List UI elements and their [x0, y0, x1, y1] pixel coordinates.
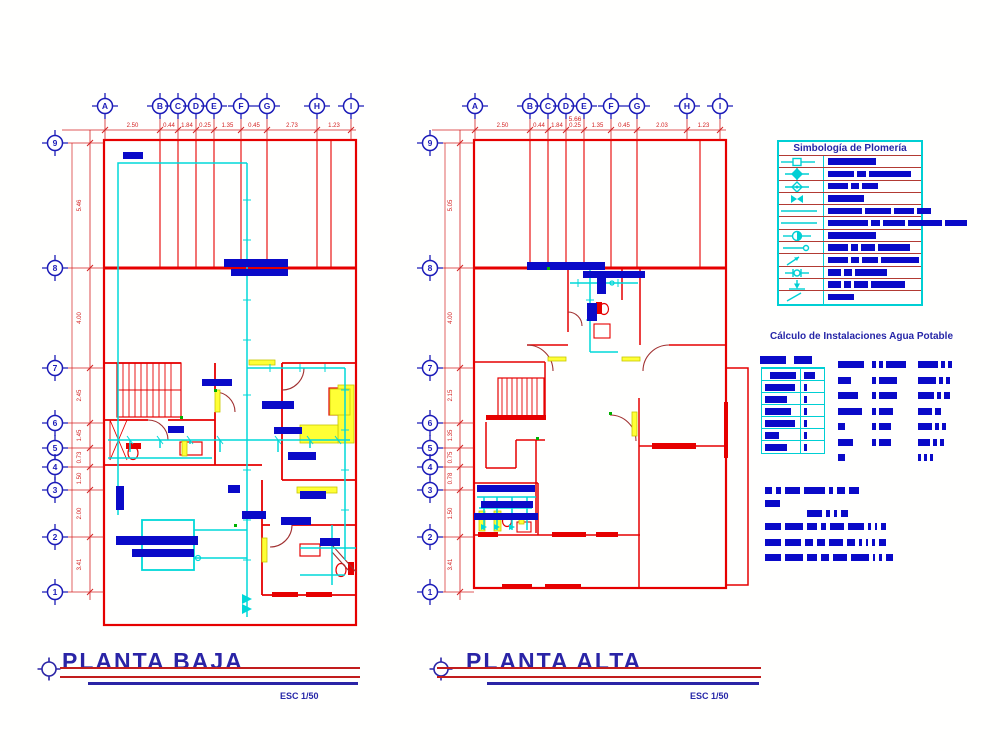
redacted-text-block	[941, 361, 945, 368]
calc-mini-row	[762, 380, 824, 392]
redacted-text-block	[804, 384, 807, 391]
grid-bubble-label: B	[527, 101, 533, 111]
redacted-text-block	[770, 372, 796, 379]
redacted-text-block	[804, 408, 807, 415]
calc-detail-group	[918, 408, 941, 415]
cad-sheet: ABCDEFGHI2.500.441.840.251.350.452.731.2…	[0, 0, 1000, 751]
redacted-text-block	[785, 487, 800, 494]
redacted-text-block	[935, 408, 941, 415]
planta-alta-walls	[474, 140, 748, 588]
dimension-label: 2.15	[448, 389, 454, 401]
redacted-text-block	[805, 539, 813, 546]
dimension-label: 5.05	[448, 199, 454, 211]
redacted-text-block	[862, 257, 878, 264]
redacted-text-block	[828, 183, 848, 190]
redacted-text-block	[807, 510, 822, 517]
redacted-text-block	[765, 396, 787, 403]
redacted-text-block	[821, 523, 826, 530]
redacted-text-block	[828, 158, 876, 165]
grid-bubble: 1	[417, 579, 443, 605]
legend-row-text	[823, 244, 910, 251]
legend-title: Simbología de Plomería	[779, 142, 921, 155]
calc-detail-group	[838, 408, 862, 415]
dimension-label: 0.45	[248, 123, 260, 129]
redacted-text-block	[765, 408, 791, 415]
grid-bubble: 4	[42, 454, 68, 480]
grid-bubble: G	[254, 93, 280, 119]
grid-bubble: 3	[42, 477, 68, 503]
dimension-label: 0.78	[448, 472, 454, 484]
grid-bubble-label: 2	[428, 532, 433, 542]
dimension-label: 1.50	[77, 472, 83, 484]
calc-detail-group	[872, 408, 893, 415]
calc-detail-group	[838, 361, 864, 368]
redacted-text-block	[879, 554, 882, 561]
redacted-text-block	[838, 408, 862, 415]
title-underline-red	[437, 676, 761, 678]
grid-bubble: H	[304, 93, 330, 119]
redacted-text-block	[844, 269, 852, 276]
grid-bubble-label: A	[102, 101, 108, 111]
redacted-text-block	[851, 554, 869, 561]
dimension-label: 2.73	[286, 123, 298, 129]
dimension-label: 3.41	[77, 558, 83, 570]
legend-row-text	[823, 220, 967, 227]
legend-row	[779, 278, 921, 290]
legend-row-text	[823, 257, 919, 264]
planta-alta-labels	[474, 262, 645, 520]
redacted-text-block	[828, 195, 864, 202]
redacted-text-block	[875, 523, 877, 530]
grid-bubble-label: 5	[53, 443, 58, 453]
redacted-text-block	[865, 208, 891, 215]
dimension-label: 1.35	[448, 429, 454, 441]
redacted-text-block	[851, 257, 859, 264]
calc-detail-group	[838, 439, 853, 446]
redacted-text-block	[872, 392, 876, 399]
grid-bubble: 8	[42, 255, 68, 281]
redacted-text-block	[944, 392, 950, 399]
grid-bubble-label: F	[608, 101, 613, 111]
grid-bubble-label: D	[563, 101, 569, 111]
redacted-text-block	[830, 523, 844, 530]
redacted-text-block	[851, 183, 859, 190]
dimension-label: 2.03	[656, 123, 668, 129]
redacted-text-block	[871, 281, 905, 288]
redacted-text-block	[935, 423, 939, 430]
grid-bubble-label: 7	[428, 363, 433, 373]
redacted-text-block	[881, 523, 886, 530]
legend-row	[779, 155, 921, 167]
grid-bubble: F	[228, 93, 254, 119]
redacted-text-block	[872, 539, 875, 546]
grid-bubble-label: 1	[53, 587, 58, 597]
grid-bubble-label: G	[634, 101, 641, 111]
grid-bubble: 3	[417, 477, 443, 503]
plumbing-legend: Simbología de Plomería	[777, 140, 923, 306]
redacted-text-block	[883, 220, 905, 227]
redacted-text-block	[828, 220, 868, 227]
redacted-text-block	[804, 444, 807, 451]
grid-bubble-label: 6	[53, 418, 58, 428]
legend-row	[779, 229, 921, 241]
redacted-text-block	[879, 539, 886, 546]
grid-bubble: 7	[42, 355, 68, 381]
redacted-text-block	[942, 423, 946, 430]
grid-bubble-label: E	[211, 101, 217, 111]
redacted-text-block	[821, 554, 829, 561]
grid-bubble-label: I	[350, 101, 352, 111]
redacted-text-block	[881, 257, 919, 264]
redacted-text-block	[924, 454, 927, 461]
grid-bubble-label: 8	[428, 263, 433, 273]
redacted-text-block	[879, 361, 883, 368]
dimension-label: 0.75	[448, 451, 454, 463]
redacted-text-block	[879, 408, 893, 415]
calc-detail-group	[838, 423, 845, 430]
redacted-text-block	[948, 361, 952, 368]
redacted-text-block	[828, 269, 841, 276]
redacted-text-block	[873, 554, 875, 561]
redacted-text-block	[908, 220, 942, 227]
legend-row-text	[823, 208, 931, 215]
redacted-text-block	[848, 523, 864, 530]
redacted-text-block	[939, 377, 943, 384]
grid-bubble: I	[707, 93, 733, 119]
grid-bubble-label: 9	[428, 138, 433, 148]
redacted-text-block	[849, 487, 859, 494]
overall-dimension-label: 5.66	[569, 116, 582, 123]
calc-mini-row	[762, 392, 824, 404]
grid-bubble-label: 4	[53, 462, 58, 472]
floor-plan-drawing: ABCDEFGHI2.500.441.840.251.350.452.731.2…	[0, 0, 1000, 751]
note-line	[765, 539, 886, 546]
redacted-text-block	[854, 281, 868, 288]
redacted-text-block	[872, 377, 876, 384]
redacted-text-block	[833, 554, 847, 561]
redacted-text-block	[804, 396, 807, 403]
note-line	[807, 510, 848, 517]
dimension-label: 1.45	[77, 429, 83, 441]
redacted-text-block	[837, 487, 845, 494]
dimension-label: 0.25	[199, 123, 211, 129]
redacted-text-block	[918, 423, 932, 430]
redacted-text-block	[879, 377, 897, 384]
calc-detail-group	[838, 454, 845, 461]
calc-detail-group	[838, 392, 858, 399]
legend-row	[779, 241, 921, 253]
title-underline-red	[60, 676, 360, 678]
legend-row-text	[823, 171, 911, 178]
planta-alta-doors	[527, 312, 669, 441]
redacted-text-block	[834, 510, 837, 517]
redacted-text-block	[872, 408, 876, 415]
redacted-text-block	[765, 444, 787, 451]
dimension-label: 0.25	[569, 123, 581, 129]
redacted-text-block	[838, 377, 851, 384]
grid-bubble-label: 3	[53, 485, 58, 495]
redacted-text-block	[807, 523, 817, 530]
calc-detail-group	[872, 439, 891, 446]
redacted-text-block	[917, 208, 931, 215]
planta-baja-labels	[116, 152, 340, 557]
grid-bubble: E	[201, 93, 227, 119]
redacted-text-block	[765, 487, 772, 494]
legend-row-text	[823, 232, 876, 239]
grid-bubble: 1	[42, 579, 68, 605]
legend-row	[779, 192, 921, 204]
legend-row-text	[823, 269, 887, 276]
grid-bubble: 7	[417, 355, 443, 381]
redacted-text-block	[765, 384, 795, 391]
legend-row-text	[823, 183, 878, 190]
grid-bubble-label: F	[238, 101, 243, 111]
calc-detail-group	[918, 423, 946, 430]
redacted-text-block	[804, 487, 825, 494]
grid-bubble-label: B	[157, 101, 163, 111]
redacted-text-block	[894, 208, 914, 215]
redacted-text-block	[871, 220, 880, 227]
calc-mini-table	[761, 367, 825, 454]
grid-bubble: 6	[417, 410, 443, 436]
redacted-text-block	[945, 220, 967, 227]
redacted-text-block	[869, 171, 911, 178]
redacted-text-block	[765, 500, 780, 507]
calc-detail-group	[838, 377, 851, 384]
redacted-text-block	[828, 171, 854, 178]
calc-mini-row	[762, 428, 824, 440]
redacted-text-block	[804, 372, 815, 379]
redacted-text-block	[760, 356, 786, 364]
planta-baja-fixtures-yellow	[182, 360, 354, 562]
calc-mini-row	[762, 416, 824, 428]
redacted-text-block	[930, 454, 933, 461]
redacted-text-block	[868, 523, 871, 530]
title-underline-red	[60, 667, 360, 669]
calc-detail-group	[918, 377, 950, 384]
redacted-text-block	[866, 539, 868, 546]
calc-table-title: Cálculo de Instalaciones Agua Potable	[770, 331, 970, 342]
redacted-text-block	[838, 439, 853, 446]
legend-row	[779, 180, 921, 192]
redacted-text-block	[878, 244, 910, 251]
grid-bubble-label: I	[719, 101, 721, 111]
calc-detail-group	[872, 392, 897, 399]
redacted-text-block	[847, 539, 855, 546]
dimension-label: 2.50	[127, 123, 139, 129]
grid-bubble-label: H	[314, 101, 320, 111]
calc-detail-group	[918, 439, 944, 446]
grid-bubble: I	[338, 93, 364, 119]
redacted-text-block	[765, 523, 781, 530]
redacted-text-block	[828, 208, 862, 215]
redacted-text-block	[765, 432, 779, 439]
redacted-text-block	[851, 244, 858, 251]
note-line	[765, 487, 859, 494]
grid-bubble-label: 5	[428, 443, 433, 453]
redacted-text-block	[918, 392, 934, 399]
grid-bubble: 4	[417, 454, 443, 480]
calc-mini-row	[762, 368, 824, 380]
grid-bubble: A	[462, 93, 488, 119]
dimension-label: 2.50	[497, 123, 509, 129]
redacted-text-block	[838, 392, 858, 399]
redacted-text-block	[841, 510, 848, 517]
plan-title: PLANTA ALTA	[466, 648, 642, 675]
redacted-text-block	[785, 523, 803, 530]
grid-bubble: G	[624, 93, 650, 119]
redacted-text-block	[838, 454, 845, 461]
grid-bubble-label: E	[581, 101, 587, 111]
dimension-label: 1.84	[551, 123, 563, 129]
grid-bubble: 8	[417, 255, 443, 281]
redacted-text-block	[940, 439, 944, 446]
redacted-text-block	[918, 377, 936, 384]
grid-bubble: A	[92, 93, 118, 119]
title-block-planta-alta: PLANTA ALTA ESC 1/50	[428, 648, 768, 708]
redacted-text-block	[844, 281, 851, 288]
note-line	[765, 500, 780, 507]
grid-bubble-label: D	[193, 101, 199, 111]
dimension-label: 0.73	[77, 451, 83, 463]
dimension-label: 0.45	[618, 123, 630, 129]
grid-bubble: 2	[417, 524, 443, 550]
grid-bubble-label: G	[264, 101, 271, 111]
dimension-label: 0.44	[163, 123, 175, 129]
calc-detail-group	[918, 392, 950, 399]
redacted-text-block	[828, 294, 854, 301]
legend-row	[779, 266, 921, 278]
calc-detail-group	[918, 454, 933, 461]
title-underline-blue	[487, 682, 759, 685]
calc-detail-group	[872, 423, 891, 430]
grid-bubble: 9	[417, 130, 443, 156]
dimension-label: 4.00	[448, 312, 454, 324]
grid-bubble-label: 8	[53, 263, 58, 273]
redacted-text-block	[918, 361, 938, 368]
calc-mini-row	[762, 440, 824, 452]
dimension-label: 1.50	[448, 507, 454, 519]
grid-bubble-label: 4	[428, 462, 433, 472]
scale-label: ESC 1/50	[690, 691, 729, 701]
grid-bubble-label: C	[175, 101, 181, 111]
dimension-label: 0.44	[533, 123, 545, 129]
north-compass-icon	[428, 656, 454, 682]
calc-detail-group	[918, 361, 952, 368]
legend-row-text	[823, 195, 864, 202]
calc-mini-row	[762, 404, 824, 416]
grid-bubble-label: C	[545, 101, 551, 111]
redacted-text-block	[765, 554, 781, 561]
redacted-text-block	[857, 171, 866, 178]
grid-bubble-label: 9	[53, 138, 58, 148]
calc-detail-group	[872, 377, 897, 384]
legend-row-text	[823, 158, 876, 165]
legend-row	[779, 167, 921, 179]
scale-label: ESC 1/50	[280, 691, 319, 701]
grid-and-dimensions: ABCDEFGHI2.500.441.840.251.350.452.731.2…	[42, 93, 733, 605]
legend-row	[779, 216, 921, 228]
redacted-text-block	[838, 423, 845, 430]
redacted-text-block	[828, 232, 876, 239]
redacted-text-block	[828, 281, 841, 288]
dimension-label: 1.23	[328, 123, 340, 129]
grid-bubble-label: A	[472, 101, 478, 111]
grid-bubble-label: 7	[53, 363, 58, 373]
legend-row-text	[823, 281, 905, 288]
plan-title: PLANTA BAJA	[62, 648, 244, 675]
redacted-text-block	[933, 439, 937, 446]
redacted-text-block	[872, 361, 876, 368]
redacted-text-block	[886, 361, 906, 368]
calc-detail-group	[872, 361, 906, 368]
redacted-text-block	[765, 420, 795, 427]
redacted-text-block	[862, 183, 878, 190]
north-compass-icon	[36, 656, 62, 682]
redacted-text-block	[785, 539, 801, 546]
dimension-label: 4.00	[77, 312, 83, 324]
dimension-label: 2.00	[77, 507, 83, 519]
redacted-text-block	[872, 439, 876, 446]
redacted-text-block	[807, 554, 817, 561]
redacted-text-block	[804, 420, 807, 427]
grid-bubble-label: H	[684, 101, 690, 111]
redacted-text-block	[776, 487, 781, 494]
redacted-text-block	[817, 539, 825, 546]
redacted-text-block	[879, 423, 891, 430]
grid-bubble: F	[598, 93, 624, 119]
dimension-label: 5.46	[77, 199, 83, 211]
grid-bubble-label: 3	[428, 485, 433, 495]
title-underline-red	[437, 667, 761, 669]
redacted-text-block	[794, 356, 812, 364]
redacted-text-block	[946, 377, 950, 384]
redacted-text-block	[828, 244, 848, 251]
redacted-text-block	[829, 539, 843, 546]
dimension-label: 1.84	[181, 123, 193, 129]
legend-row	[779, 290, 921, 302]
redacted-text-block	[826, 510, 830, 517]
redacted-text-block	[879, 392, 897, 399]
redacted-text-block	[937, 392, 941, 399]
redacted-text-block	[886, 554, 893, 561]
legend-row	[779, 204, 921, 216]
redacted-text-block	[861, 244, 875, 251]
dimension-label: 1.23	[698, 123, 710, 129]
grid-bubble: 6	[42, 410, 68, 436]
redacted-text-block	[785, 554, 803, 561]
grid-bubble-label: 1	[428, 587, 433, 597]
dimension-label: 2.45	[77, 389, 83, 401]
redacted-text-block	[859, 539, 862, 546]
grid-bubble: 2	[42, 524, 68, 550]
grid-bubble: H	[674, 93, 700, 119]
redacted-text-block	[855, 269, 887, 276]
redacted-text-block	[804, 432, 807, 439]
grid-bubble-label: 6	[428, 418, 433, 428]
redacted-text-block	[829, 487, 833, 494]
redacted-text-block	[918, 408, 932, 415]
redacted-text-block	[828, 257, 848, 264]
grid-bubble-label: 2	[53, 532, 58, 542]
redacted-text-block	[872, 423, 876, 430]
redacted-text-block	[918, 439, 930, 446]
legend-row	[779, 253, 921, 265]
dimension-label: 3.41	[448, 558, 454, 570]
dimension-label: 1.35	[592, 123, 604, 129]
title-block-planta-baja: PLANTA BAJA ESC 1/50	[36, 648, 366, 708]
redacted-text-block	[879, 439, 891, 446]
